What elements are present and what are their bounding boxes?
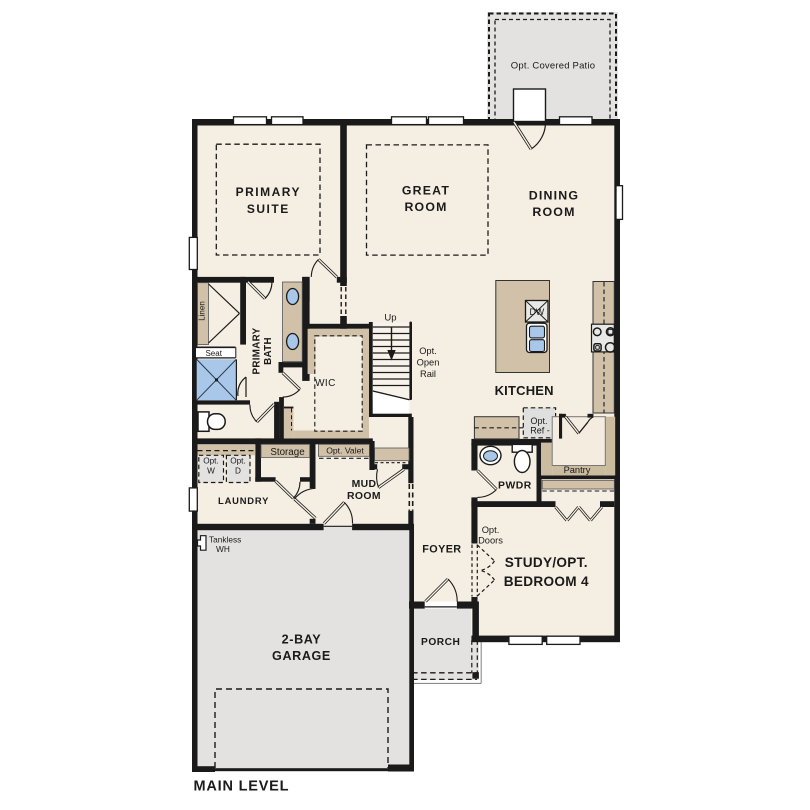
svg-text:Opt.: Opt. xyxy=(530,416,547,426)
svg-text:W: W xyxy=(207,467,215,476)
svg-text:Linen: Linen xyxy=(198,301,207,321)
svg-text:Opt.: Opt. xyxy=(230,457,245,466)
svg-text:LAUNDRY: LAUNDRY xyxy=(218,495,269,506)
svg-text:Rail: Rail xyxy=(420,369,436,379)
svg-text:ROOM: ROOM xyxy=(532,205,575,219)
svg-text:Ref -: Ref - xyxy=(530,426,550,436)
svg-text:MUD: MUD xyxy=(352,479,377,490)
svg-text:MAIN LEVEL: MAIN LEVEL xyxy=(194,779,290,795)
svg-text:Opt.: Opt. xyxy=(203,457,218,466)
svg-text:DW: DW xyxy=(529,307,544,317)
svg-text:DINING: DINING xyxy=(529,189,580,203)
svg-text:Opt. Covered Patio: Opt. Covered Patio xyxy=(511,61,595,72)
svg-text:KITCHEN: KITCHEN xyxy=(495,383,554,398)
svg-text:PRIMARY: PRIMARY xyxy=(236,185,301,199)
svg-text:Opt. Valet: Opt. Valet xyxy=(326,446,364,456)
svg-text:PRIMARY: PRIMARY xyxy=(252,327,263,374)
svg-text:BATH: BATH xyxy=(263,337,274,365)
svg-text:BEDROOM 4: BEDROOM 4 xyxy=(504,574,589,589)
svg-text:SUITE: SUITE xyxy=(247,202,290,216)
svg-text:Tankless: Tankless xyxy=(209,535,241,545)
svg-text:Pantry: Pantry xyxy=(564,465,591,475)
svg-text:ROOM: ROOM xyxy=(404,200,447,214)
svg-text:GREAT: GREAT xyxy=(402,184,450,198)
svg-text:GARAGE: GARAGE xyxy=(272,649,331,663)
svg-text:Storage: Storage xyxy=(270,447,305,458)
svg-text:D: D xyxy=(235,467,241,476)
svg-text:Opt.: Opt. xyxy=(482,525,500,535)
svg-text:PORCH: PORCH xyxy=(421,637,460,648)
svg-text:WH: WH xyxy=(216,544,230,554)
svg-text:Seat: Seat xyxy=(205,349,222,358)
svg-text:Doors: Doors xyxy=(478,536,503,546)
svg-text:FOYER: FOYER xyxy=(422,543,461,555)
svg-text:WIC: WIC xyxy=(315,378,336,389)
svg-text:ROOM: ROOM xyxy=(347,491,381,502)
svg-text:Opt.: Opt. xyxy=(419,346,437,356)
svg-text:Open: Open xyxy=(417,358,440,368)
svg-text:PWDR: PWDR xyxy=(498,481,532,492)
svg-text:2-BAY: 2-BAY xyxy=(282,632,322,646)
svg-text:Up: Up xyxy=(384,313,396,324)
svg-text:STUDY/OPT.: STUDY/OPT. xyxy=(505,555,588,570)
